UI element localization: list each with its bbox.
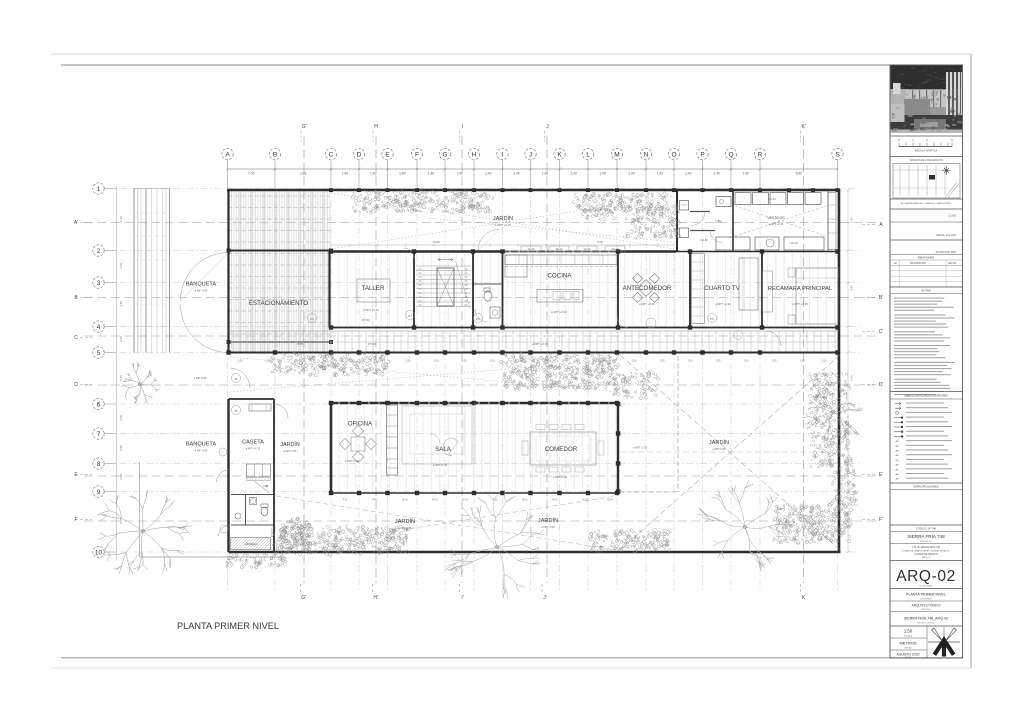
svg-text:No.: No. — [894, 263, 898, 265]
svg-text:2.60: 2.60 — [119, 336, 123, 342]
svg-text:1.40: 1.40 — [742, 172, 748, 176]
svg-text:D: D — [357, 151, 362, 158]
svg-text:1.50: 1.50 — [406, 360, 411, 363]
svg-text:D': D' — [879, 382, 884, 388]
svg-text:D: D — [74, 382, 78, 388]
svg-text:CÓDIGO: SF-748: CÓDIGO: SF-748 — [916, 528, 936, 531]
svg-text:F: F — [415, 151, 419, 158]
svg-text:36: 36 — [234, 377, 238, 381]
svg-text:CROQUIS DE LOCALIZACIÓN: CROQUIS DE LOCALIZACIÓN — [909, 159, 943, 162]
svg-text:♦ BODEGA: ♦ BODEGA — [244, 542, 257, 546]
svg-text:ARQ-02: ARQ-02 — [896, 568, 956, 585]
svg-text:1: 1 — [97, 186, 101, 193]
svg-text:9: 9 — [97, 489, 101, 496]
svg-text:METROS: METROS — [899, 641, 916, 646]
svg-text:JARDÍN: JARDÍN — [538, 517, 558, 524]
svg-text:10: 10 — [95, 549, 103, 556]
svg-text:1.40: 1.40 — [428, 172, 434, 176]
svg-text:5.60: 5.60 — [796, 172, 802, 176]
svg-text:1.50: 1.50 — [434, 360, 439, 363]
svg-text:PROYECTO: PROYECTO — [920, 541, 932, 543]
svg-text:FECHA: FECHA — [905, 656, 912, 659]
svg-text:P.05: P.05 — [297, 342, 303, 346]
svg-text:1.40: 1.40 — [485, 172, 491, 176]
svg-text:ESTACIONAMIENTO: ESTACIONAMIENTO — [249, 300, 308, 307]
svg-text:PLANTA PRIMER NIVEL: PLANTA PRIMER NIVEL — [906, 593, 946, 597]
svg-text:5.15: 5.15 — [850, 375, 854, 381]
svg-text:1.50: 1.50 — [462, 360, 467, 363]
svg-text:P.12: P.12 — [343, 499, 348, 502]
svg-text:A: A — [225, 151, 230, 158]
svg-text:DESCRIPCIÓN: DESCRIPCIÓN — [910, 262, 926, 265]
svg-text:SIERRA FRÍA 748: SIERRA FRÍA 748 — [907, 533, 945, 539]
svg-text:VESTIDOR: VESTIDOR — [767, 216, 785, 220]
svg-text:M-04: M-04 — [607, 499, 613, 502]
svg-text:ARQUITECTÓNICO: ARQUITECTÓNICO — [912, 603, 941, 608]
svg-text:PARTIDA: PARTIDA — [922, 608, 931, 611]
svg-text:CIUDAD DE MÉXICO: CIUDAD DE MÉXICO — [914, 553, 937, 556]
svg-text:P6: P6 — [710, 317, 714, 321]
svg-text:REVISIONES: REVISIONES — [918, 256, 935, 260]
svg-text:1.40: 1.40 — [657, 172, 663, 176]
svg-text:♦ NPT 0.30: ♦ NPT 0.30 — [433, 463, 447, 467]
svg-text:6.20: 6.20 — [850, 217, 854, 223]
svg-text:CASETA: CASETA — [242, 440, 264, 446]
svg-text:1.50: 1.50 — [772, 360, 777, 363]
svg-text:♦ NPT +0.30: ♦ NPT +0.30 — [551, 310, 567, 314]
svg-text:6.20: 6.20 — [119, 216, 123, 222]
svg-text:A': A' — [74, 220, 78, 226]
svg-text:1.50: 1.50 — [294, 360, 299, 363]
svg-text:1.40: 1.40 — [456, 172, 462, 176]
svg-text:1.50: 1.50 — [490, 360, 495, 363]
svg-text:BANQUETA: BANQUETA — [186, 282, 217, 288]
svg-text:1.40: 1.40 — [714, 172, 720, 176]
svg-text:1.40: 1.40 — [399, 172, 405, 176]
svg-text:♦ NPT +0.30: ♦ NPT +0.30 — [792, 302, 808, 306]
svg-text:ACOTACIÓN: MTS: ACOTACIÓN: MTS — [936, 251, 957, 254]
svg-text:J: J — [529, 151, 532, 158]
svg-text:BANQUETA: BANQUETA — [186, 442, 217, 448]
svg-text:4: 4 — [97, 324, 101, 331]
svg-text:PT-01: PT-01 — [362, 318, 370, 322]
svg-text:♦ NPT +0.30: ♦ NPT +0.30 — [363, 308, 379, 312]
svg-text:OFICINA: OFICINA — [348, 422, 372, 428]
svg-text:1.50: 1.50 — [632, 360, 637, 363]
svg-text:1.40: 1.40 — [685, 172, 691, 176]
svg-text:SIERRA FRÍA 748_ARQ-02: SIERRA FRÍA 748_ARQ-02 — [904, 617, 948, 621]
svg-text:35: 35 — [234, 409, 238, 413]
svg-text:ARCHIVO DIGITAL: ARCHIVO DIGITAL — [917, 621, 935, 624]
svg-text:6: 6 — [97, 401, 101, 408]
svg-text:P: P — [700, 151, 704, 158]
svg-text:5.00: 5.00 — [597, 240, 603, 244]
svg-text:P7: P7 — [408, 314, 412, 318]
svg-text:♦ NPT +0.15: ♦ NPT +0.15 — [769, 222, 784, 226]
svg-text:K': K' — [802, 124, 806, 130]
svg-text:B': B' — [879, 295, 883, 301]
svg-text:I': I' — [461, 595, 463, 601]
svg-text:JARDÍN: JARDÍN — [709, 439, 729, 446]
svg-text:CH-02: CH-02 — [700, 238, 708, 242]
svg-text:5: 5 — [97, 350, 101, 357]
svg-text:N: N — [644, 151, 649, 158]
svg-text:COMEDOR: COMEDOR — [545, 446, 578, 453]
svg-text:7: 7 — [97, 431, 101, 438]
svg-text:C': C' — [879, 329, 884, 335]
svg-text:E': E' — [879, 472, 883, 478]
svg-text:M-02: M-02 — [402, 499, 408, 502]
svg-text:1.50: 1.50 — [800, 360, 805, 363]
svg-text:3.20: 3.20 — [119, 263, 123, 269]
svg-text:TALLER: TALLER — [362, 285, 385, 292]
svg-text:SIMBOLOGÍA ALZADOS INTERIORES: SIMBOLOGÍA ALZADOS INTERIORES — [904, 395, 948, 398]
svg-text:1.40: 1.40 — [571, 172, 577, 176]
svg-text:P4: P4 — [310, 317, 314, 321]
svg-text:COCINA: COCINA — [547, 273, 572, 280]
svg-text:VE-02: VE-02 — [584, 248, 591, 251]
svg-text:♦ NPT +0.30: ♦ NPT +0.30 — [639, 302, 655, 306]
svg-text:♦ NPT +0.15: ♦ NPT +0.15 — [532, 342, 548, 346]
svg-text:1.50: 1.50 — [688, 360, 693, 363]
svg-text:VE-02: VE-02 — [528, 248, 535, 251]
svg-text:4.40: 4.40 — [850, 285, 854, 291]
svg-text:CH-03: CH-03 — [790, 241, 798, 245]
svg-text:1.40: 1.40 — [542, 172, 548, 176]
svg-text:UNIDAD: UNIDAD — [904, 646, 912, 649]
svg-text:♦ NP. 0.05: ♦ NP. 0.05 — [195, 449, 208, 453]
svg-text:F: F — [74, 517, 77, 523]
svg-text:B: B — [273, 151, 277, 158]
svg-text:CALLE SIERRA FRÍA 748: CALLE SIERRA FRÍA 748 — [912, 546, 940, 549]
svg-text:K: K — [557, 151, 562, 158]
svg-text:♦ NPT +0.30: ♦ NPT +0.30 — [715, 302, 731, 306]
svg-text:3: 3 — [97, 280, 101, 287]
svg-text:ESCALA: ESCALA — [904, 634, 913, 637]
svg-text:LAV: LAV — [715, 220, 722, 224]
svg-text:2.95: 2.95 — [119, 445, 123, 451]
svg-text:J': J' — [543, 595, 547, 601]
svg-text:PT-03: PT-03 — [368, 342, 376, 346]
svg-text:C: C — [74, 335, 78, 341]
svg-text:MÉXICO: MÉXICO — [922, 556, 930, 559]
svg-text:JARDÍN: JARDÍN — [395, 518, 415, 525]
svg-text:H: H — [472, 151, 477, 158]
svg-text:C: C — [329, 151, 334, 158]
svg-text:♦ NPT 0.30: ♦ NPT 0.30 — [553, 475, 567, 479]
svg-text:1.40: 1.40 — [370, 172, 376, 176]
svg-text:2.80: 2.80 — [119, 474, 123, 480]
svg-text:RECÁMARA PRINCIPAL: RECÁMARA PRINCIPAL — [768, 285, 833, 292]
svg-text:CH-01: CH-01 — [768, 197, 776, 201]
svg-text:E: E — [385, 151, 390, 158]
svg-text:1.50: 1.50 — [744, 360, 749, 363]
svg-text:1.50: 1.50 — [822, 360, 827, 363]
svg-text:F': F' — [879, 517, 883, 523]
svg-text:No. DE PLANO: No. DE PLANO — [919, 585, 933, 588]
svg-text:7.00: 7.00 — [248, 172, 254, 176]
svg-text:M: M — [614, 151, 619, 158]
svg-text:I: I — [502, 151, 504, 158]
svg-text:8: 8 — [97, 461, 101, 468]
svg-text:2: 2 — [97, 248, 101, 255]
svg-text:FECHA: JUL 2020: FECHA: JUL 2020 — [936, 234, 956, 237]
svg-text:CUARTO TV: CUARTO TV — [704, 285, 740, 292]
svg-text:♦ NPT -1.70: ♦ NPT -1.70 — [633, 446, 647, 450]
svg-text:G': G' — [301, 595, 306, 601]
svg-text:R: R — [758, 151, 763, 158]
svg-text:1.50: 1.50 — [238, 360, 243, 363]
svg-text:1:50: 1:50 — [904, 629, 913, 634]
svg-text:1.50: 1.50 — [660, 360, 665, 363]
svg-text:CONTENIDO: CONTENIDO — [920, 598, 932, 600]
svg-text:1.50: 1.50 — [266, 360, 271, 363]
svg-text:AV. SIERRA FRÍA 748, LOMAS DE: AV. SIERRA FRÍA 748, LOMAS DE CHAPULTEPE… — [901, 202, 952, 205]
svg-text:▪: ▪ — [249, 467, 250, 471]
svg-text:H': H' — [373, 595, 378, 601]
svg-text:ESPECIFICACIONES: ESPECIFICACIONES — [913, 485, 939, 489]
svg-text:M-03: M-03 — [462, 499, 468, 502]
svg-text:ESCALA GRÁFICA: ESCALA GRÁFICA — [915, 149, 938, 153]
svg-text:♦ NP. 0.05: ♦ NP. 0.05 — [195, 289, 208, 293]
svg-text:P6: P6 — [476, 317, 480, 321]
svg-text:2.95: 2.95 — [119, 415, 123, 421]
svg-text:M-01: M-01 — [522, 499, 528, 502]
svg-text:4.40: 4.40 — [119, 301, 123, 307]
svg-text:2.98: 2.98 — [300, 172, 306, 176]
svg-text:L: L — [586, 151, 590, 158]
svg-text:1.40: 1.40 — [628, 172, 634, 176]
svg-text:H: H — [374, 124, 378, 130]
svg-text:S: S — [835, 151, 840, 158]
svg-text:VE-02: VE-02 — [556, 248, 563, 251]
svg-text:♦ NPT 0.05: ♦ NPT 0.05 — [284, 449, 298, 453]
svg-text:CLAVE: CLAVE — [948, 215, 956, 218]
svg-text:♦ NPT +0.15: ♦ NPT +0.15 — [246, 447, 261, 451]
svg-text:O: O — [671, 151, 676, 158]
svg-text:I: I — [462, 124, 463, 130]
svg-text:1.40: 1.40 — [513, 172, 519, 176]
svg-text:JARDÍN: JARDÍN — [280, 441, 300, 448]
svg-text:PR-1: PR-1 — [372, 499, 378, 502]
svg-text:♦ NP. 0.05: ♦ NP. 0.05 — [194, 376, 207, 380]
svg-text:ANTECOMEDOR: ANTECOMEDOR — [623, 285, 672, 292]
svg-text:♦ NPT 0.05: ♦ NPT 0.05 — [542, 525, 556, 529]
svg-text:♦ NPT 0.30: ♦ NPT 0.30 — [345, 459, 359, 463]
svg-text:♦ NPT +0.15: ♦ NPT +0.15 — [495, 223, 511, 227]
svg-text:NOTAS: NOTAS — [921, 289, 931, 293]
svg-text:G': G' — [302, 124, 307, 130]
svg-text:1.50: 1.50 — [716, 360, 721, 363]
svg-text:14.00: 14.00 — [433, 240, 440, 244]
svg-text:PLANTA PRIMER NIVEL: PLANTA PRIMER NIVEL — [177, 621, 279, 631]
svg-text:♦ NPT 0.05: ♦ NPT 0.05 — [713, 447, 727, 451]
svg-text:M-02: M-02 — [552, 499, 558, 502]
svg-text:1.40: 1.40 — [342, 172, 348, 176]
svg-text:FECHA: FECHA — [948, 262, 956, 265]
svg-text:1.40: 1.40 — [599, 172, 605, 176]
svg-text:5.15: 5.15 — [119, 375, 123, 381]
svg-text:M-02: M-02 — [432, 499, 438, 502]
svg-text:G: G — [442, 151, 447, 158]
svg-text:Q: Q — [728, 151, 733, 158]
